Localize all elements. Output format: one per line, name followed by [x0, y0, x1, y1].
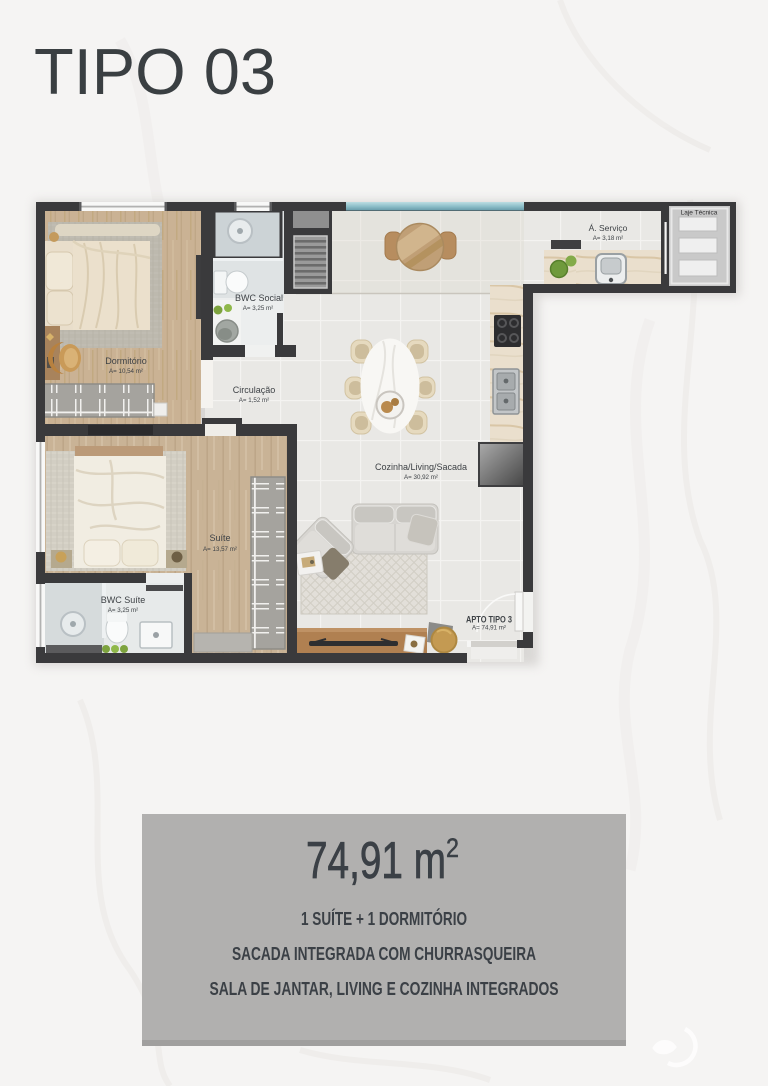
svg-text:Cozinha/Living/Sacada: Cozinha/Living/Sacada — [375, 462, 467, 472]
svg-text:A= 3,18 m²: A= 3,18 m² — [593, 235, 623, 242]
svg-text:Á. Serviço: Á. Serviço — [589, 223, 628, 233]
svg-text:Laje Técnica: Laje Técnica — [681, 210, 718, 217]
svg-text:Suíte: Suíte — [209, 533, 230, 543]
svg-text:A= 74,91 m²: A= 74,91 m² — [472, 625, 506, 632]
svg-text:74,91 m: 74,91 m — [306, 832, 446, 890]
svg-text:A= 30,92 m²: A= 30,92 m² — [404, 474, 438, 481]
svg-text:A= 13,57 m²: A= 13,57 m² — [203, 546, 237, 553]
svg-text:2: 2 — [446, 833, 459, 863]
svg-text:BWC Suíte: BWC Suíte — [101, 595, 146, 605]
svg-text:SACADA INTEGRADA COM CHURRASQU: SACADA INTEGRADA COM CHURRASQUEIRA — [232, 944, 536, 964]
svg-text:A= 3,25 m²: A= 3,25 m² — [108, 607, 138, 614]
svg-text:Circulação: Circulação — [233, 385, 276, 395]
svg-text:1 SUÍTE + 1 DORMITÓRIO: 1 SUÍTE + 1 DORMITÓRIO — [301, 908, 467, 929]
svg-text:TIPO 03: TIPO 03 — [34, 35, 276, 108]
svg-text:BWC Social: BWC Social — [235, 293, 283, 303]
svg-text:A= 3,25 m²: A= 3,25 m² — [243, 305, 273, 312]
svg-text:A= 1,52 m²: A= 1,52 m² — [239, 397, 269, 404]
svg-text:SALA DE JANTAR, LIVING E COZIN: SALA DE JANTAR, LIVING E COZINHA INTEGRA… — [210, 979, 559, 999]
svg-text:A= 10,54 m²: A= 10,54 m² — [109, 368, 143, 375]
svg-text:Dormitório: Dormitório — [105, 356, 147, 366]
